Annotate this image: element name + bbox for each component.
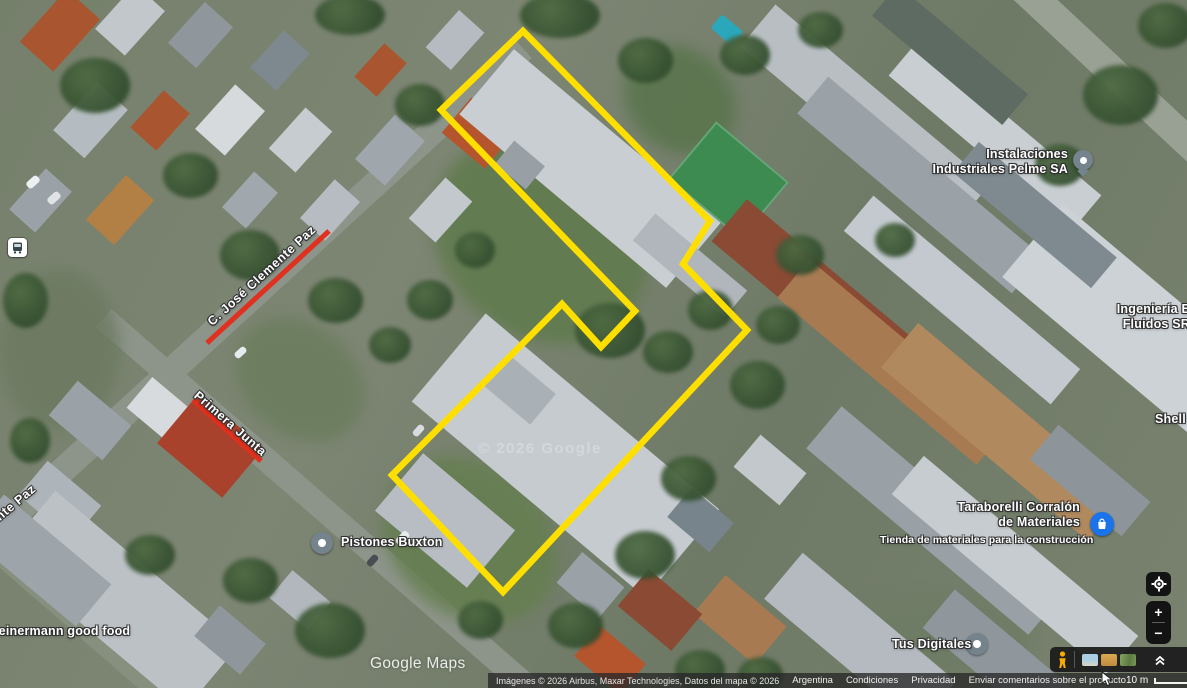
layer-thumbnail-terrain[interactable]: [1101, 654, 1117, 666]
tree-shape: [875, 223, 915, 257]
label-kleinermann[interactable]: leinermann good food: [0, 624, 130, 639]
tree-shape: [776, 235, 824, 275]
bus-glyph: [12, 242, 23, 254]
tree-shape: [756, 306, 800, 344]
satellite-backdrop: [0, 0, 1187, 688]
roof-shape: [86, 175, 154, 245]
label-pistones-buxton[interactable]: Pistones Buxton: [341, 535, 443, 550]
roof-shape: [130, 90, 189, 151]
tree-shape: [407, 280, 453, 320]
shopping-bag-pin-icon[interactable]: [1090, 512, 1114, 536]
attribution-bar: Imágenes © 2026 Airbus, Maxar Technologi…: [488, 673, 1187, 688]
roof-shape: [95, 0, 165, 56]
my-location-button[interactable]: [1146, 572, 1171, 596]
tree-shape: [369, 327, 411, 363]
roof-shape: [250, 30, 309, 91]
zoom-control[interactable]: + −: [1146, 601, 1171, 644]
roof-shape: [426, 10, 485, 70]
tree-shape: [308, 278, 363, 323]
layer-thumbnail-map[interactable]: [1082, 654, 1098, 666]
zoom-out-button[interactable]: −: [1146, 624, 1171, 642]
tree-shape: [395, 84, 445, 126]
my-location-icon: [1151, 576, 1167, 592]
label-ingenieria[interactable]: Ingeniería E Fluidos SR: [1098, 302, 1187, 332]
tree-shape: [1083, 65, 1158, 125]
tree-shape: [455, 232, 495, 268]
tree-shape: [615, 531, 675, 579]
tree-shape: [295, 603, 365, 658]
dot-pin-icon[interactable]: [311, 532, 333, 554]
label-taraborelli-line1: Taraborelli Corralón: [880, 500, 1080, 515]
bottom-dock: [1050, 647, 1187, 672]
link-condiciones[interactable]: Condiciones: [846, 675, 898, 686]
zoom-divider: [1152, 622, 1165, 623]
label-ingenieria-line1: Ingeniería E: [1098, 302, 1187, 317]
bus-stop-icon[interactable]: [8, 238, 27, 257]
tree-shape: [163, 153, 218, 198]
pin-dot: [1080, 157, 1087, 164]
dock-divider: [1074, 651, 1075, 668]
roof-shape: [354, 43, 406, 97]
scale-bar: [1154, 678, 1187, 684]
label-pelme-line2: Industriales Pelme SA: [880, 162, 1068, 177]
car-shape: [411, 423, 425, 437]
map-viewport[interactable]: © 2026 Google C. José Clemente Paz Prime…: [0, 0, 1187, 688]
roof-shape: [9, 168, 72, 232]
roof-shape: [222, 171, 278, 228]
label-pelme[interactable]: Instalaciones Industriales Pelme SA: [880, 147, 1068, 177]
tree-shape: [661, 456, 716, 501]
tree-shape: [60, 58, 130, 113]
label-ingenieria-line2: Fluidos SR: [1098, 317, 1187, 332]
link-enviar-comentarios[interactable]: Enviar comentarios sobre el producto: [969, 675, 1126, 686]
tree-shape: [458, 601, 503, 639]
tree-shape: [315, 0, 385, 35]
label-pelme-line1: Instalaciones: [880, 147, 1068, 162]
link-argentina[interactable]: Argentina: [792, 675, 833, 686]
pegman-icon[interactable]: [1057, 651, 1068, 669]
tree-shape: [548, 603, 603, 648]
tree-shape: [643, 331, 693, 373]
label-shell[interactable]: Shell: [1155, 412, 1186, 427]
link-privacidad[interactable]: Privacidad: [911, 675, 955, 686]
shopping-bag-glyph: [1096, 518, 1108, 530]
imagery-attribution: Imágenes © 2026 Airbus, Maxar Technologi…: [496, 676, 779, 686]
tree-shape: [3, 273, 48, 328]
map-pin-icon[interactable]: [1073, 150, 1093, 170]
label-taraborelli-line2: de Materiales: [880, 515, 1080, 530]
tree-shape: [720, 35, 770, 75]
pin-dot: [973, 640, 981, 648]
roof-shape: [195, 84, 265, 155]
tree-shape: [688, 290, 733, 330]
label-taraborelli-subtitle: Tienda de materiales para la construcció…: [880, 533, 1085, 548]
tile-watermark: © 2026 Google: [478, 440, 602, 457]
zoom-in-button[interactable]: +: [1146, 603, 1171, 621]
scale-label: 10 m: [1126, 675, 1148, 686]
collapse-chevron-icon[interactable]: [1153, 653, 1167, 667]
label-tus-digitales[interactable]: Tus Digitales: [892, 637, 971, 652]
tree-shape: [618, 38, 673, 83]
google-maps-watermark: Google Maps: [370, 655, 466, 673]
roof-shape: [167, 2, 232, 68]
tree-shape: [125, 535, 175, 575]
label-taraborelli[interactable]: Taraborelli Corralón de Materiales: [880, 500, 1080, 530]
tree-shape: [730, 361, 785, 409]
tree-shape: [223, 558, 278, 603]
tree-shape: [10, 418, 50, 463]
roof-shape: [268, 108, 332, 173]
tree-shape: [520, 0, 600, 38]
pin-dot: [318, 539, 326, 547]
map-scale: 10 m: [1126, 675, 1187, 686]
tree-shape: [575, 303, 645, 358]
tree-shape: [798, 12, 843, 48]
layer-thumbnail-satellite[interactable]: [1120, 654, 1136, 666]
tree-shape: [1138, 3, 1187, 48]
roof-shape: [734, 435, 807, 506]
